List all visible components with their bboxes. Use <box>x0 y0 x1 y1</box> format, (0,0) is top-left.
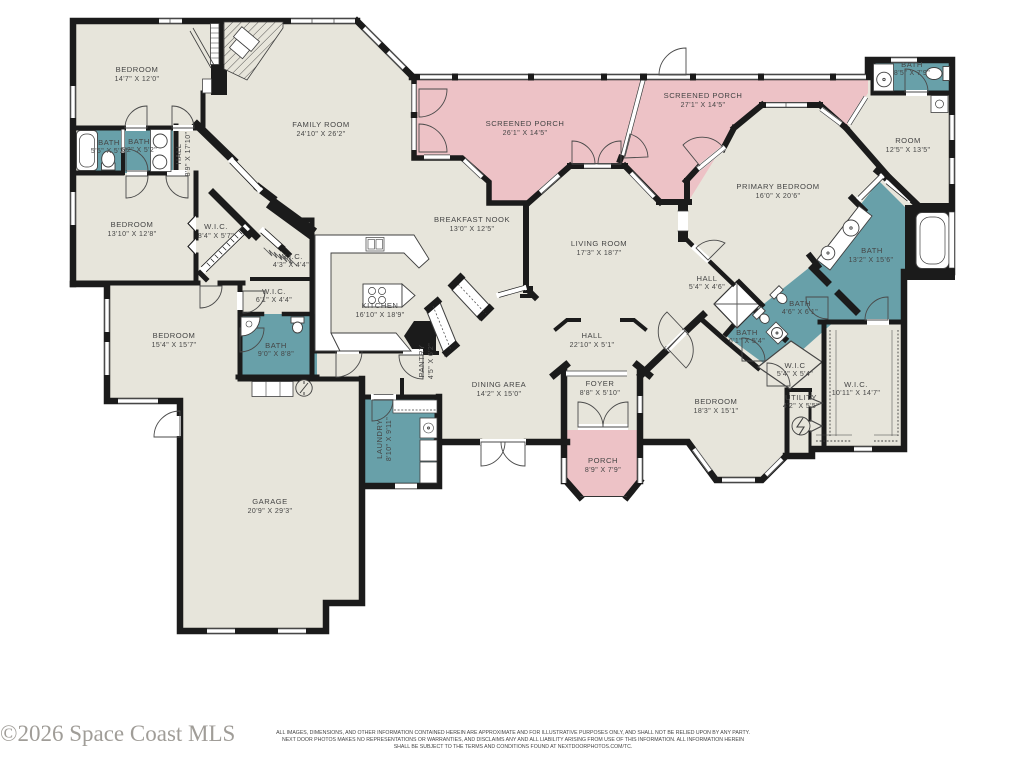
svg-text:6'1" X 4'4": 6'1" X 4'4" <box>256 297 292 304</box>
svg-text:17'3" X 18'7": 17'3" X 18'7" <box>577 250 622 257</box>
svg-text:W.I.C.: W.I.C. <box>844 380 868 389</box>
svg-text:13'2" X 15'6": 13'2" X 15'6" <box>849 257 894 264</box>
svg-text:PRIMARY BEDROOM: PRIMARY BEDROOM <box>736 182 819 191</box>
svg-text:13'10" X 12'8": 13'10" X 12'8" <box>107 231 156 238</box>
svg-text:4'3" X 4'4": 4'3" X 4'4" <box>273 262 309 269</box>
svg-text:BEDROOM: BEDROOM <box>153 331 196 340</box>
svg-text:SCREENED PORCH: SCREENED PORCH <box>664 91 743 100</box>
svg-text:5'4" X 5'4": 5'4" X 5'4" <box>777 371 813 378</box>
svg-text:8'9" X 17'10": 8'9" X 17'10" <box>185 132 192 177</box>
svg-text:NEXT DOOR PHOTOS MAKES NO REPR: NEXT DOOR PHOTOS MAKES NO REPRESENTATION… <box>282 737 744 743</box>
svg-text:FOYER: FOYER <box>586 379 615 388</box>
svg-text:UTILITY: UTILITY <box>785 393 817 402</box>
svg-text:KITCHEN: KITCHEN <box>362 301 399 310</box>
svg-text:4'2" X 5'5": 4'2" X 5'5" <box>783 403 819 410</box>
svg-text:GARAGE: GARAGE <box>252 497 288 506</box>
svg-text:BATH: BATH <box>736 328 758 337</box>
svg-text:BEDROOM: BEDROOM <box>695 397 738 406</box>
svg-text:BREAKFAST NOOK: BREAKFAST NOOK <box>434 215 510 224</box>
svg-text:6'1" X 5'4": 6'1" X 5'4" <box>729 338 765 345</box>
svg-text:14'7" X 12'0": 14'7" X 12'0" <box>115 76 160 83</box>
svg-text:PANTRY: PANTRY <box>417 344 426 377</box>
svg-text:6'2" X 5'2": 6'2" X 5'2" <box>121 147 157 154</box>
svg-text:HALL: HALL <box>174 144 183 165</box>
svg-text:4'5" X 6'2": 4'5" X 6'2" <box>428 343 435 379</box>
svg-text:26'1" X 14'5": 26'1" X 14'5" <box>503 130 548 137</box>
svg-text:FAMILY ROOM: FAMILY ROOM <box>292 120 350 129</box>
svg-text:LIVING ROOM: LIVING ROOM <box>571 239 627 248</box>
svg-text:8'10" X 9'11": 8'10" X 9'11" <box>386 417 393 461</box>
svg-text:4'6" X 6'1": 4'6" X 6'1" <box>782 309 818 316</box>
svg-text:8'9" X 7'9": 8'9" X 7'9" <box>585 467 621 474</box>
svg-text:BATH: BATH <box>789 299 811 308</box>
svg-text:24'10" X 26'2": 24'10" X 26'2" <box>296 131 345 138</box>
svg-text:W.I.C.: W.I.C. <box>204 222 228 231</box>
svg-text:14'2" X 15'0": 14'2" X 15'0" <box>477 391 522 398</box>
svg-text:BATH: BATH <box>265 341 287 350</box>
svg-text:22'10" X 5'1": 22'10" X 5'1" <box>570 342 615 349</box>
svg-text:20'9" X 29'3": 20'9" X 29'3" <box>248 508 293 515</box>
svg-text:©2026 Space Coast MLS: ©2026 Space Coast MLS <box>0 721 235 746</box>
svg-text:W.I.C.: W.I.C. <box>262 287 286 296</box>
svg-text:BATH: BATH <box>128 137 150 146</box>
svg-text:DINING AREA: DINING AREA <box>472 380 527 389</box>
svg-text:BATH: BATH <box>98 138 120 147</box>
svg-text:18'3" X 15'1": 18'3" X 15'1" <box>694 408 739 415</box>
svg-text:LAUNDRY: LAUNDRY <box>375 419 384 459</box>
svg-text:ROOM: ROOM <box>895 136 921 145</box>
svg-text:8'5" X 7'9": 8'5" X 7'9" <box>894 70 930 77</box>
svg-text:15'4" X 15'7": 15'4" X 15'7" <box>152 342 197 349</box>
svg-text:HALL: HALL <box>697 274 718 283</box>
svg-text:8'4" X 5'7": 8'4" X 5'7" <box>198 233 234 240</box>
svg-text:BEDROOM: BEDROOM <box>116 65 159 74</box>
svg-text:8'8" X 5'10": 8'8" X 5'10" <box>580 390 621 397</box>
svg-text:9'0" X 8'8": 9'0" X 8'8" <box>258 351 294 358</box>
svg-text:HALL: HALL <box>582 331 603 340</box>
svg-text:5'4" X 4'6": 5'4" X 4'6" <box>689 284 725 291</box>
svg-text:13'0" X 12'5": 13'0" X 12'5" <box>450 226 495 233</box>
svg-text:10'11" X 14'7": 10'11" X 14'7" <box>832 390 881 397</box>
svg-text:SCREENED PORCH: SCREENED PORCH <box>486 119 565 128</box>
svg-text:ALL IMAGES, DIMENSIONS, AND OT: ALL IMAGES, DIMENSIONS, AND OTHER INFORM… <box>276 730 750 736</box>
svg-text:BATH: BATH <box>901 60 923 69</box>
svg-text:W.I.C: W.I.C <box>784 361 805 370</box>
svg-text:BATH: BATH <box>861 246 883 255</box>
svg-text:BEDROOM: BEDROOM <box>111 220 154 229</box>
svg-text:12'5" X 13'5": 12'5" X 13'5" <box>886 147 931 154</box>
svg-text:W.I.C.: W.I.C. <box>279 252 303 261</box>
svg-text:16'0" X 20'6": 16'0" X 20'6" <box>756 193 801 200</box>
svg-text:27'1" X 14'5": 27'1" X 14'5" <box>681 102 726 109</box>
svg-text:SHALL BE SUBJECT TO THE TERMS: SHALL BE SUBJECT TO THE TERMS AND CONDIT… <box>394 744 633 750</box>
svg-text:PORCH: PORCH <box>588 456 618 465</box>
svg-text:16'10" X 18'9": 16'10" X 18'9" <box>355 312 404 319</box>
